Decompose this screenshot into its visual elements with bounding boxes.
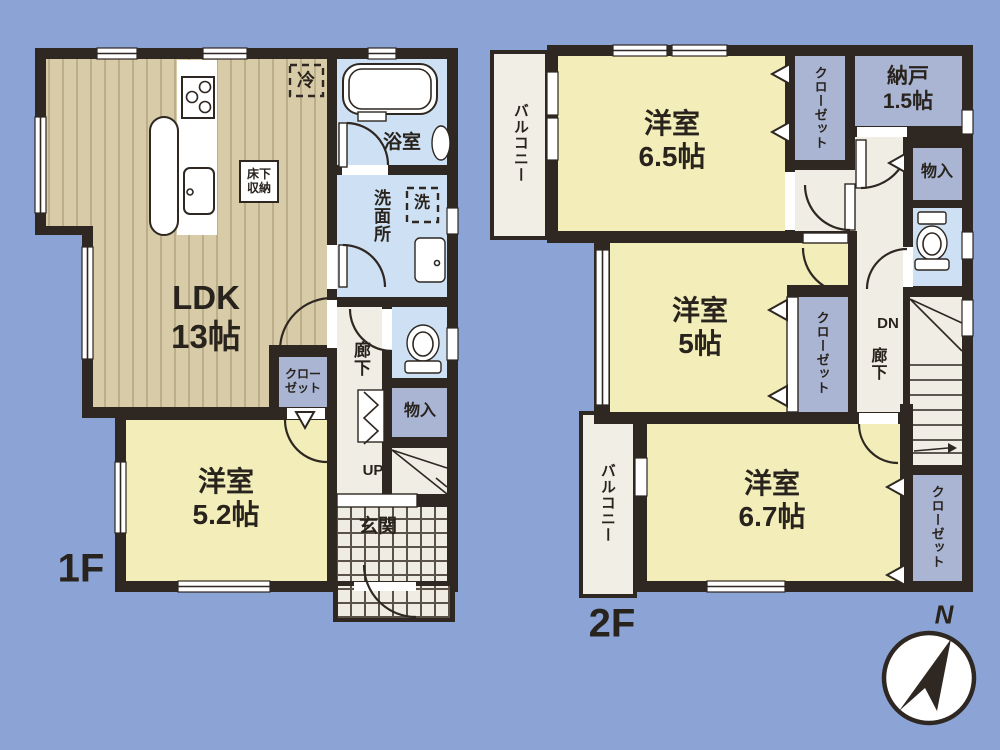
bath-label: 浴室 bbox=[383, 132, 421, 154]
room-5-label-line2: 5帖 bbox=[672, 327, 728, 360]
washer-label: 洗 bbox=[414, 195, 430, 214]
closet1-label-line1: クロー bbox=[285, 367, 321, 381]
room-52-label: 洋室 5.2帖 bbox=[193, 465, 260, 531]
washroom-door-leaf bbox=[339, 245, 347, 287]
kitchen-sink-icon bbox=[184, 168, 214, 214]
room-65-label-line1: 洋室 bbox=[639, 107, 706, 140]
room-52-label-line1: 洋室 bbox=[193, 465, 260, 498]
storage2-label: 物入 bbox=[921, 164, 953, 183]
floor-plan-page: LDK 13帖 洋室 5.2帖 浴室 洗面所 洗 冷 床下 収納 廊下 クロー … bbox=[0, 0, 1000, 750]
room65-door-leaf bbox=[845, 184, 855, 230]
balcony-bottom-label: バルコニー bbox=[598, 463, 616, 543]
storeroom-door-leaf bbox=[856, 140, 866, 188]
compass-north-label: N bbox=[935, 600, 954, 631]
underfloor-storage-line1: 床下 bbox=[247, 167, 271, 181]
room-67-label: 洋室 6.7帖 bbox=[739, 467, 806, 533]
storeroom-label-line1: 納戸 bbox=[883, 65, 933, 90]
toilet2-icon bbox=[915, 212, 949, 270]
room-67-label-line2: 6.7帖 bbox=[739, 500, 806, 533]
room5-door-leaf bbox=[803, 233, 848, 243]
stairs-down-label: DN bbox=[877, 315, 899, 333]
room-ldk-label-line2: 13帖 bbox=[171, 318, 241, 357]
floor1-label: 1F bbox=[58, 545, 105, 592]
room-65-label: 洋室 6.5帖 bbox=[639, 107, 706, 173]
hallway1-label: 廊下 bbox=[350, 341, 370, 377]
closet-top-label: クローゼット bbox=[812, 66, 827, 150]
room-ldk-label-line1: LDK bbox=[171, 279, 241, 318]
hallway2-label: 廊下 bbox=[867, 347, 886, 381]
entrance-step bbox=[337, 494, 417, 507]
compass bbox=[884, 633, 974, 723]
room-67-label-line1: 洋室 bbox=[739, 467, 806, 500]
underfloor-storage-line2: 収納 bbox=[247, 181, 271, 195]
toilet1-icon bbox=[405, 325, 441, 373]
bath-basin-icon bbox=[432, 126, 450, 160]
washroom-label: 洗面所 bbox=[370, 189, 390, 243]
stairs-up-label: UP bbox=[363, 462, 384, 480]
floor2-label: 2F bbox=[589, 600, 636, 647]
floor-plan-canvas bbox=[0, 0, 1000, 750]
closet-middle-label: クローゼット bbox=[814, 311, 829, 395]
room-52-label-line2: 5.2帖 bbox=[193, 498, 260, 531]
storage1-label: 物入 bbox=[404, 403, 436, 422]
fridge-label: 冷 bbox=[297, 70, 315, 91]
room-65-label-line2: 6.5帖 bbox=[639, 140, 706, 173]
closet-bottom-label: クローゼット bbox=[929, 485, 944, 569]
storeroom-label: 納戸 1.5帖 bbox=[883, 65, 933, 115]
bath-door-leaf bbox=[339, 123, 347, 167]
room-5-label-line1: 洋室 bbox=[672, 294, 728, 327]
closet1-label: クロー ゼット bbox=[285, 367, 321, 395]
vanity-sink-icon bbox=[415, 238, 445, 282]
balcony-top-label: バルコニー bbox=[511, 103, 529, 183]
room-5-label: 洋室 5帖 bbox=[672, 294, 728, 360]
storeroom-label-line2: 1.5帖 bbox=[883, 90, 933, 115]
closet1-label-line2: ゼット bbox=[285, 381, 321, 395]
entrance-label: 玄関 bbox=[359, 516, 397, 538]
floor2-plan bbox=[492, 45, 973, 596]
room-ldk-label: LDK 13帖 bbox=[171, 279, 241, 357]
closet-middle-door-leaf bbox=[787, 297, 798, 412]
underfloor-storage-label: 床下 収納 bbox=[247, 167, 271, 195]
